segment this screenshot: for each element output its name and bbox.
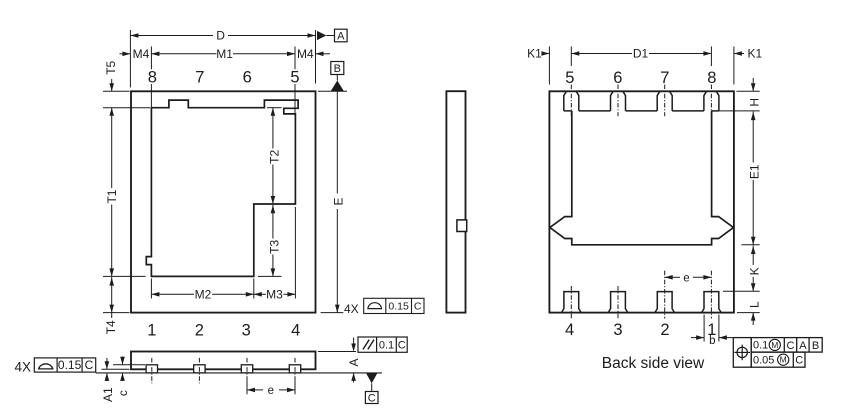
svg-text:K: K (748, 267, 762, 275)
svg-text:b: b (709, 335, 715, 347)
svg-text:A1: A1 (101, 387, 115, 402)
svg-text:M1: M1 (216, 47, 233, 61)
svg-text:0.1: 0.1 (379, 340, 394, 352)
svg-text:0.1: 0.1 (753, 340, 768, 352)
svg-text:8: 8 (707, 69, 716, 87)
svg-text:C: C (787, 340, 795, 352)
svg-text:T5: T5 (104, 60, 118, 74)
svg-text:0.15: 0.15 (388, 301, 409, 313)
svg-text:7: 7 (660, 69, 669, 87)
svg-text:2: 2 (195, 321, 204, 339)
svg-text:K1: K1 (527, 47, 542, 61)
svg-text:0.05: 0.05 (753, 355, 774, 367)
svg-text:A: A (347, 358, 361, 366)
svg-text:B: B (334, 63, 341, 75)
svg-text:4: 4 (565, 321, 574, 339)
svg-text:6: 6 (613, 69, 622, 87)
svg-text:e: e (683, 272, 689, 284)
svg-text:8: 8 (148, 69, 157, 87)
svg-text:M: M (780, 355, 787, 365)
svg-text:M2: M2 (195, 288, 212, 302)
svg-text:T4: T4 (104, 320, 118, 334)
svg-text:C: C (85, 358, 94, 372)
svg-text:5: 5 (565, 69, 574, 87)
svg-text:4: 4 (291, 321, 300, 339)
svg-text:M: M (771, 340, 778, 350)
svg-text:1: 1 (147, 321, 156, 339)
svg-text:T2: T2 (267, 149, 281, 163)
svg-text:A: A (799, 340, 807, 352)
svg-text:6: 6 (243, 69, 252, 87)
svg-text:M4: M4 (297, 47, 314, 61)
svg-text:2: 2 (660, 321, 669, 339)
svg-text:K1: K1 (747, 47, 762, 61)
svg-text:Back side view: Back side view (602, 355, 705, 372)
svg-text:C: C (795, 355, 803, 367)
svg-text:C: C (414, 301, 422, 313)
svg-text:E: E (332, 197, 346, 205)
svg-text:5: 5 (290, 69, 299, 87)
svg-text:T3: T3 (267, 239, 281, 253)
svg-text:B: B (812, 340, 819, 352)
svg-text:0.15: 0.15 (58, 358, 82, 372)
svg-text:E1: E1 (747, 164, 761, 179)
svg-text:3: 3 (613, 321, 622, 339)
svg-text:C: C (398, 340, 406, 352)
svg-text:L: L (747, 301, 761, 308)
svg-text:T1: T1 (105, 189, 119, 203)
svg-text:M4: M4 (133, 47, 150, 61)
svg-text:c: c (116, 390, 130, 396)
svg-text:H: H (748, 98, 762, 107)
svg-text:3: 3 (242, 321, 251, 339)
svg-text:7: 7 (195, 69, 204, 87)
svg-text:D1: D1 (633, 47, 649, 61)
svg-text:D: D (216, 29, 225, 43)
svg-text:4X: 4X (15, 360, 32, 375)
svg-text:M3: M3 (266, 288, 283, 302)
svg-text:e: e (268, 385, 274, 397)
svg-text:A: A (337, 30, 345, 42)
svg-text:C: C (368, 392, 376, 404)
svg-text:4X: 4X (344, 302, 359, 316)
